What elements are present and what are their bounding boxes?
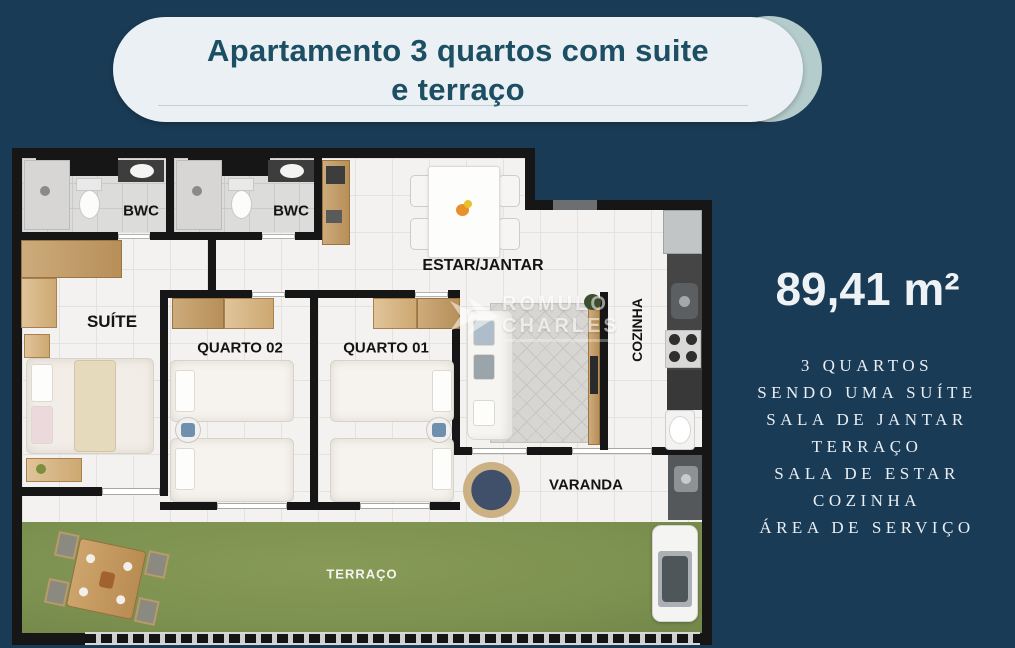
floor-plan: BWC BWC SUÍTE QUARTO 02 QUARTO 01 ESTAR/… <box>12 148 712 645</box>
sofa-cushion-gray <box>473 354 495 380</box>
estar-console-box <box>326 210 342 223</box>
feature-list: 3 QUARTOS SENDO UMA SUÍTE SALA DE JANTAR… <box>722 352 1012 541</box>
suite-wardrobe-top <box>21 240 122 278</box>
bwc1-toilet-icon <box>79 190 100 219</box>
quarto02-door <box>252 292 285 297</box>
wall-quartos-bottom-b <box>287 502 360 510</box>
quarto02-wardrobe-b <box>224 298 274 329</box>
title-line-1: Apartamento 3 quartos com suite <box>207 31 709 70</box>
washer-door-icon <box>662 556 688 602</box>
suite-blanket <box>74 360 116 452</box>
quarto01-pillow-1 <box>432 370 452 412</box>
label-varanda: VARANDA <box>549 477 623 494</box>
tv-icon <box>590 356 598 394</box>
fruit-icon <box>464 200 472 208</box>
wall-suite-right <box>160 290 168 496</box>
quarto02-pillow-1 <box>175 370 195 412</box>
burner-icon <box>686 351 697 362</box>
kitchen-sink-drain-icon <box>679 296 690 307</box>
wall-bwc-front-b <box>150 232 262 240</box>
wall-top <box>12 148 535 158</box>
sofa-cushion-white <box>473 400 495 426</box>
quarto01-pillow-2 <box>432 448 452 490</box>
burner-icon <box>669 334 680 345</box>
feature-item: ÁREA DE SERVIÇO <box>722 514 1012 541</box>
bwc2-toilet-icon <box>231 190 252 219</box>
label-suite: SUÍTE <box>87 312 137 332</box>
fridge <box>663 210 702 254</box>
suite-pillow-pink <box>31 406 53 444</box>
feature-item: SENDO UMA SUÍTE <box>722 379 1012 406</box>
bwc1-shower-head-icon <box>40 186 50 196</box>
dining-chair <box>498 218 520 250</box>
label-quarto02: QUARTO 02 <box>197 340 283 357</box>
wall-bottom-left <box>12 633 85 645</box>
title-banner: Apartamento 3 quartos com suite e terraç… <box>113 17 803 122</box>
wall-varanda-a <box>460 447 472 455</box>
wall-bwc-front-a <box>22 232 118 240</box>
wall-bottom-right <box>700 633 712 645</box>
suite-bench <box>26 458 82 482</box>
terrace-chair <box>144 550 170 579</box>
varanda-slider-1 <box>472 448 527 454</box>
label-terraco: TERRAÇO <box>326 567 397 582</box>
wall-right <box>702 200 712 645</box>
wall-bwc-front-c <box>295 232 322 240</box>
service-tank-drain-icon <box>681 474 691 484</box>
burner-icon <box>686 334 697 345</box>
title-line-2: e terraço <box>391 70 525 109</box>
bwc2-door <box>262 234 295 239</box>
wall-quarto-divider <box>310 290 318 510</box>
label-bwc2: BWC <box>273 203 309 220</box>
estar-console-frame <box>326 166 345 184</box>
bwc2-sink-icon <box>280 164 304 178</box>
suite-nightstand <box>24 334 50 358</box>
quarto01-wardrobe-a <box>373 298 417 329</box>
watermark-logo-icon <box>450 297 496 337</box>
quarto02-decor <box>181 423 195 437</box>
quarto01-window <box>360 503 430 509</box>
label-quarto01: QUARTO 01 <box>343 340 429 357</box>
quarto01-decor <box>432 423 446 437</box>
watermark: ROMULO CHARLES <box>450 291 625 351</box>
entrance-door <box>553 200 597 210</box>
feature-item: SALA DE JANTAR <box>722 406 1012 433</box>
suite-wardrobe-side <box>21 278 57 328</box>
label-cozinha: COZINHA <box>629 298 645 362</box>
wall-bwc2-right <box>314 158 322 240</box>
quarto02-pillow-2 <box>175 448 195 490</box>
laundry-tub-basin-icon <box>669 416 691 444</box>
varanda-slider-2 <box>572 448 652 454</box>
banner-underline <box>158 105 748 106</box>
wall-left <box>12 148 22 645</box>
quarto02-window <box>217 503 287 509</box>
varanda-round-rug <box>463 462 520 518</box>
wall-bwc-divider <box>166 158 174 240</box>
area-value: 89,41 m² <box>730 262 1005 316</box>
wall-quartos-top-a <box>160 290 252 298</box>
wall-varanda-b <box>527 447 572 455</box>
burner-icon <box>669 351 680 362</box>
watermark-line-2: CHARLES <box>502 315 620 337</box>
bwc2-shower-head-icon <box>192 186 202 196</box>
label-estar-jantar: ESTAR/JANTAR <box>422 257 543 275</box>
feature-item: COZINHA <box>722 487 1012 514</box>
quarto01-door <box>415 292 448 297</box>
wall-quartos-top-b <box>285 290 415 298</box>
quarto02-wardrobe-a <box>172 298 224 329</box>
suite-pillow <box>31 364 53 402</box>
wall-hall <box>208 232 216 298</box>
terrace-chair <box>134 597 160 626</box>
feature-item: TERRAÇO <box>722 433 1012 460</box>
watermark-subline <box>504 339 608 342</box>
wall-quartos-bottom-a <box>160 502 217 510</box>
suite-terrace-door <box>102 488 160 495</box>
terrace-railing <box>85 632 700 645</box>
bwc1-door <box>118 234 150 239</box>
feature-item: 3 QUARTOS <box>722 352 1012 379</box>
bwc1-sink-icon <box>130 164 154 178</box>
feature-item: SALA DE ESTAR <box>722 460 1012 487</box>
watermark-text: ROMULO CHARLES <box>502 293 620 337</box>
label-bwc1: BWC <box>123 203 159 220</box>
plan-notch-mask <box>535 148 712 200</box>
dining-chair <box>498 175 520 207</box>
poster-background: { "banner": { "line1": "Apartamento 3 qu… <box>0 0 1015 648</box>
wall-suite-bottom <box>22 487 102 496</box>
watermark-line-1: ROMULO <box>502 293 620 315</box>
suite-plant-icon <box>36 464 46 474</box>
wall-quartos-bottom-c <box>430 502 460 510</box>
kitchen-cabinet <box>667 370 702 410</box>
